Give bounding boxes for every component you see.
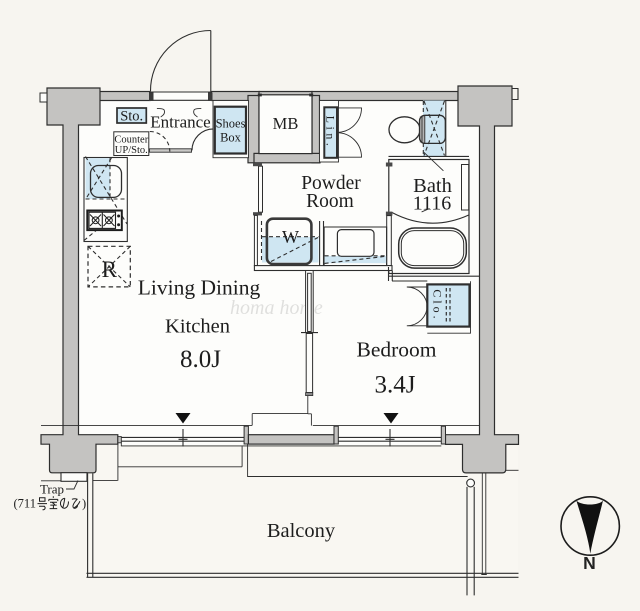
svg-text:8.0J: 8.0J — [180, 346, 221, 373]
svg-text:Counter: Counter — [114, 134, 148, 145]
svg-text:Box: Box — [220, 131, 242, 145]
svg-text:Room: Room — [306, 191, 354, 212]
svg-text:(711: (711 — [14, 497, 36, 511]
svg-text:UP/Sto.: UP/Sto. — [115, 145, 148, 156]
svg-text:3.4J: 3.4J — [375, 372, 416, 399]
svg-text:1116: 1116 — [413, 193, 452, 215]
svg-text:N: N — [583, 553, 596, 573]
svg-text:Lin.: Lin. — [324, 116, 338, 150]
svg-text:R: R — [102, 257, 118, 282]
svg-text:Entrance: Entrance — [150, 113, 210, 132]
svg-text:Balcony: Balcony — [267, 520, 336, 542]
svg-text:Bedroom: Bedroom — [356, 338, 436, 362]
svg-text:Shoes: Shoes — [216, 117, 246, 131]
svg-text:Sto.: Sto. — [120, 108, 143, 124]
svg-text:): ) — [82, 497, 86, 511]
svg-text:MB: MB — [273, 114, 299, 133]
svg-text:Trap: Trap — [40, 482, 64, 497]
svg-text:Living Dining: Living Dining — [138, 276, 261, 300]
svg-text:Kitchen: Kitchen — [165, 316, 230, 338]
svg-text:Clo.: Clo. — [431, 289, 445, 321]
svg-text:W: W — [282, 227, 299, 247]
